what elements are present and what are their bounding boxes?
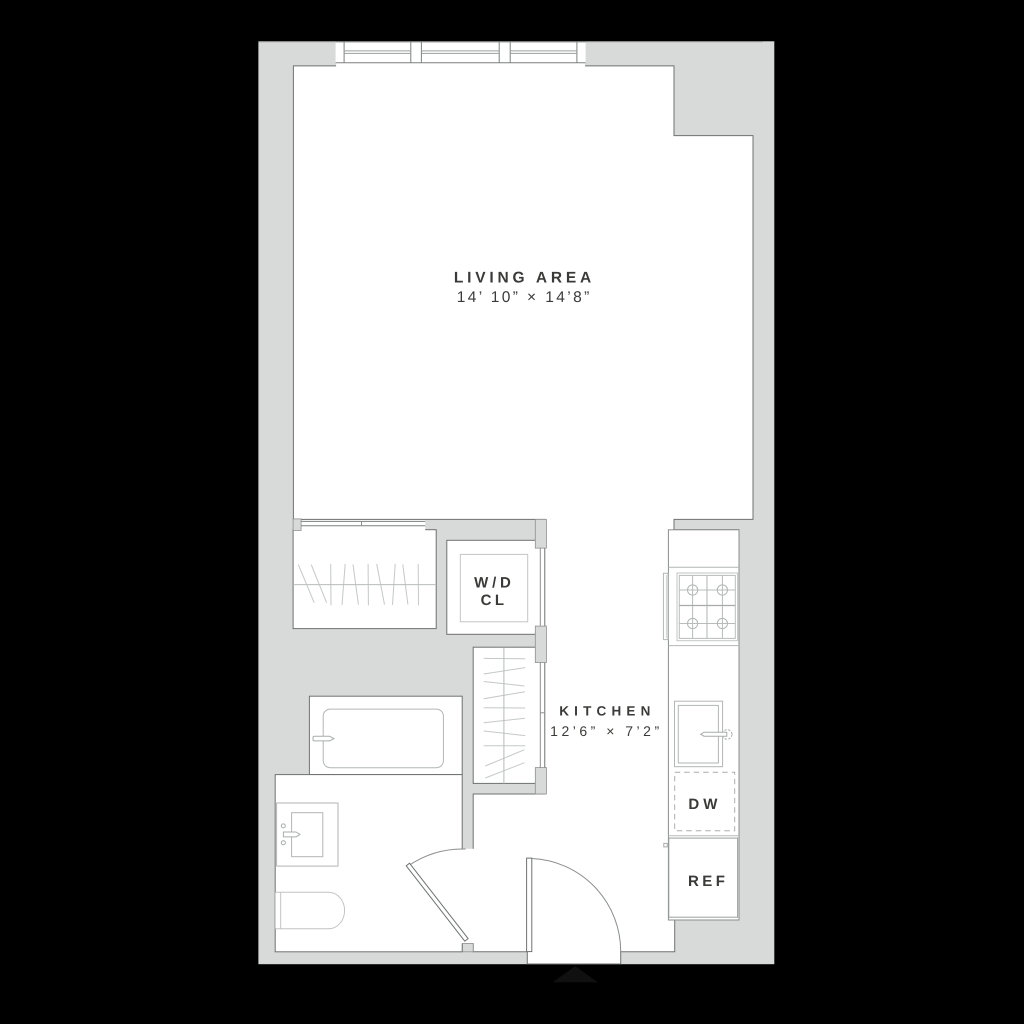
svg-text:14’ 10” × 14’8”: 14’ 10” × 14’8” bbox=[457, 289, 592, 306]
svg-text:CL: CL bbox=[481, 592, 508, 609]
svg-text:W/D: W/D bbox=[474, 575, 515, 592]
svg-text:12’6” × 7’2”: 12’6” × 7’2” bbox=[550, 723, 662, 739]
svg-text:REF: REF bbox=[688, 873, 729, 890]
svg-text:DW: DW bbox=[688, 796, 721, 813]
svg-text:LIVING AREA: LIVING AREA bbox=[454, 269, 595, 286]
svg-text:KITCHEN: KITCHEN bbox=[559, 703, 655, 718]
